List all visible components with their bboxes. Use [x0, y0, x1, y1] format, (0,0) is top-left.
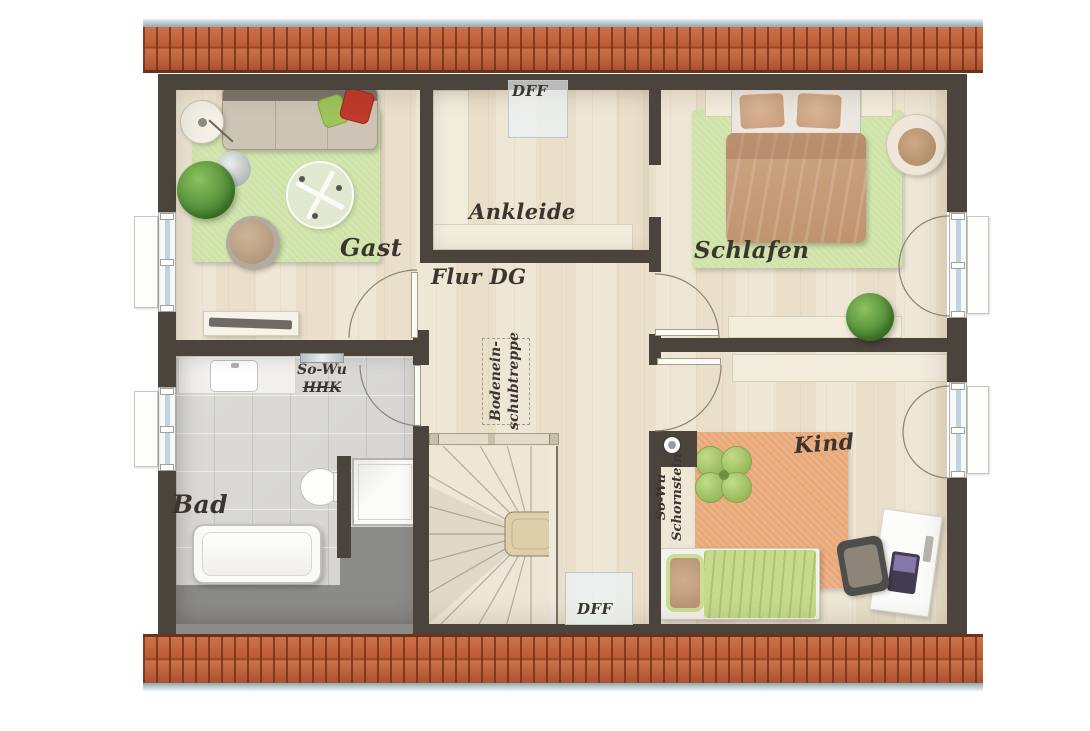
window-gast-frame-top — [160, 213, 174, 220]
room-label-gast: Gast — [340, 236, 402, 260]
gast-coffee-table — [286, 161, 354, 229]
room-label-bad: Bad — [172, 492, 228, 517]
low-headroom-zone-bottom — [176, 585, 340, 634]
window-schlafen-frame-bottom — [951, 311, 965, 318]
wall-shower-stub — [337, 456, 351, 558]
ankleide-closet-bottom — [433, 224, 633, 250]
kind-closet — [732, 354, 947, 382]
annotation-loft-ladder: Bodenein- schubtreppe — [488, 326, 524, 436]
annotation-chimney: So-Wu Schornstein — [654, 449, 688, 545]
wall-ankleide-schlafen-b — [649, 217, 661, 272]
window-bad-frame-bottom — [160, 464, 174, 471]
window-bad-frame-top — [160, 388, 174, 395]
schlafen-nightstand-right — [861, 87, 893, 117]
schlafen-blanket — [726, 133, 866, 243]
room-label-schlafen: Schlafen — [694, 239, 809, 262]
window-kind — [949, 382, 967, 478]
gast-table-knob1 — [299, 176, 305, 182]
annotation-dff-top: DFF — [512, 84, 548, 99]
window-gast-frame-mid — [160, 259, 174, 266]
bad-washbasin — [210, 360, 258, 392]
gast-table-knob3 — [312, 213, 318, 219]
annotation-loft-line1: Bodenein- — [488, 326, 506, 436]
roof-tiles-top — [143, 27, 983, 73]
schlafen-blanket-fold — [726, 133, 866, 159]
kind-blanket — [704, 550, 816, 618]
schlafen-pillow-right — [793, 90, 845, 133]
door-leaf-kind — [657, 358, 721, 365]
door-leaf-gast — [411, 272, 418, 338]
annotation-dff-bottom: DFF — [577, 602, 613, 617]
window-schlafen — [949, 212, 967, 318]
stair-rail-cap-right — [549, 434, 558, 444]
kind-desk-laptop — [887, 551, 920, 595]
kind-desk-item — [922, 536, 934, 563]
roof-strip-bottom — [143, 634, 983, 692]
kind-chair-seat — [843, 543, 883, 588]
window-kind-frame-bottom — [951, 471, 965, 478]
stair-rail-cap-left — [430, 434, 439, 444]
wall-schlafen-kind-cap — [649, 334, 661, 353]
window-kind-frame-top — [951, 383, 965, 390]
schlafen-armchair-seat — [898, 128, 936, 166]
annotation-loft-line2: schubtreppe — [506, 326, 524, 436]
wall-ankleide-bottom — [420, 250, 661, 263]
room-label-ankleide: Ankleide — [469, 201, 576, 222]
window-schlafen-frame-top — [951, 213, 965, 220]
schlafen-plant — [846, 293, 894, 341]
roof-gutter-top — [143, 18, 983, 27]
window-gast-sill — [134, 216, 158, 308]
window-bad-frame-mid — [160, 426, 174, 433]
schlafen-nightstand-left — [705, 87, 733, 117]
gast-table-knob2 — [336, 185, 342, 191]
kind-laptop-screen — [893, 554, 917, 573]
window-kind-sill — [967, 386, 989, 474]
bad-faucet — [231, 363, 239, 368]
gast-pouf-cushion — [230, 220, 274, 264]
schlafen-armchair — [886, 114, 946, 176]
roof-tiles-bottom — [143, 634, 983, 683]
window-schlafen-frame-mid — [951, 262, 965, 269]
window-bad — [158, 387, 176, 471]
window-gast-frame-bottom — [160, 305, 174, 312]
roof-gutter-bottom — [143, 683, 983, 692]
annotation-chimney-line1: So-Wu — [654, 449, 670, 545]
window-bad-sill — [134, 391, 158, 467]
wall-ankleide-schlafen-a — [649, 74, 661, 165]
gast-side-table — [180, 100, 224, 144]
wall-exterior-right-c — [947, 478, 967, 634]
bad-bathtub — [192, 524, 322, 584]
schlafen-pillow-left — [736, 90, 788, 133]
winder-staircase — [429, 446, 557, 624]
wall-bad-right-b — [413, 426, 429, 634]
window-gast — [158, 212, 176, 312]
room-label-kind: Kind — [793, 431, 855, 457]
bad-shower-tray — [358, 464, 412, 520]
door-leaf-bad — [414, 365, 421, 426]
bad-shower — [352, 458, 418, 526]
kind-pillow — [666, 554, 704, 612]
stair-right-stringer — [549, 446, 558, 624]
roof-strip-top — [143, 18, 983, 76]
floor-plan-canvas: Gast Ankleide Schlafen Flur DG Bad Kind … — [0, 0, 1090, 731]
window-schlafen-sill — [967, 216, 989, 314]
wall-exterior-bottom — [429, 624, 967, 634]
door-leaf-schlafen — [655, 329, 719, 336]
gast-table-lamp-base — [198, 118, 207, 127]
gast-sideboard-item — [209, 318, 292, 330]
wall-bad-top — [158, 340, 429, 356]
annotation-chimney-line2: Schornstein — [670, 449, 686, 545]
kind-desk-chair — [835, 534, 890, 597]
gast-plant — [177, 161, 235, 219]
bad-bathtub-inner — [202, 532, 312, 576]
wall-exterior-left-a — [158, 74, 176, 213]
gast-sofa-seam1 — [275, 101, 276, 149]
wall-exterior-right-b — [947, 318, 967, 382]
gast-table-leg2 — [306, 170, 336, 220]
gast-pouf — [226, 216, 280, 270]
kind-flower-center — [719, 470, 729, 480]
wall-schlafen-kind — [649, 338, 947, 352]
room-label-flur: Flur DG — [431, 266, 526, 287]
window-kind-frame-mid — [951, 427, 965, 434]
wall-ankleide-left — [420, 74, 433, 263]
kind-flower-pouf — [695, 446, 753, 504]
annotation-sowu-hhk: So-Wu HHK — [292, 362, 352, 397]
annotation-sowu-line1: So-Wu — [292, 362, 352, 380]
annotation-sowu-line2: HHK — [292, 380, 352, 398]
wall-exterior-right-a — [947, 74, 967, 212]
gast-sideboard — [203, 311, 299, 336]
